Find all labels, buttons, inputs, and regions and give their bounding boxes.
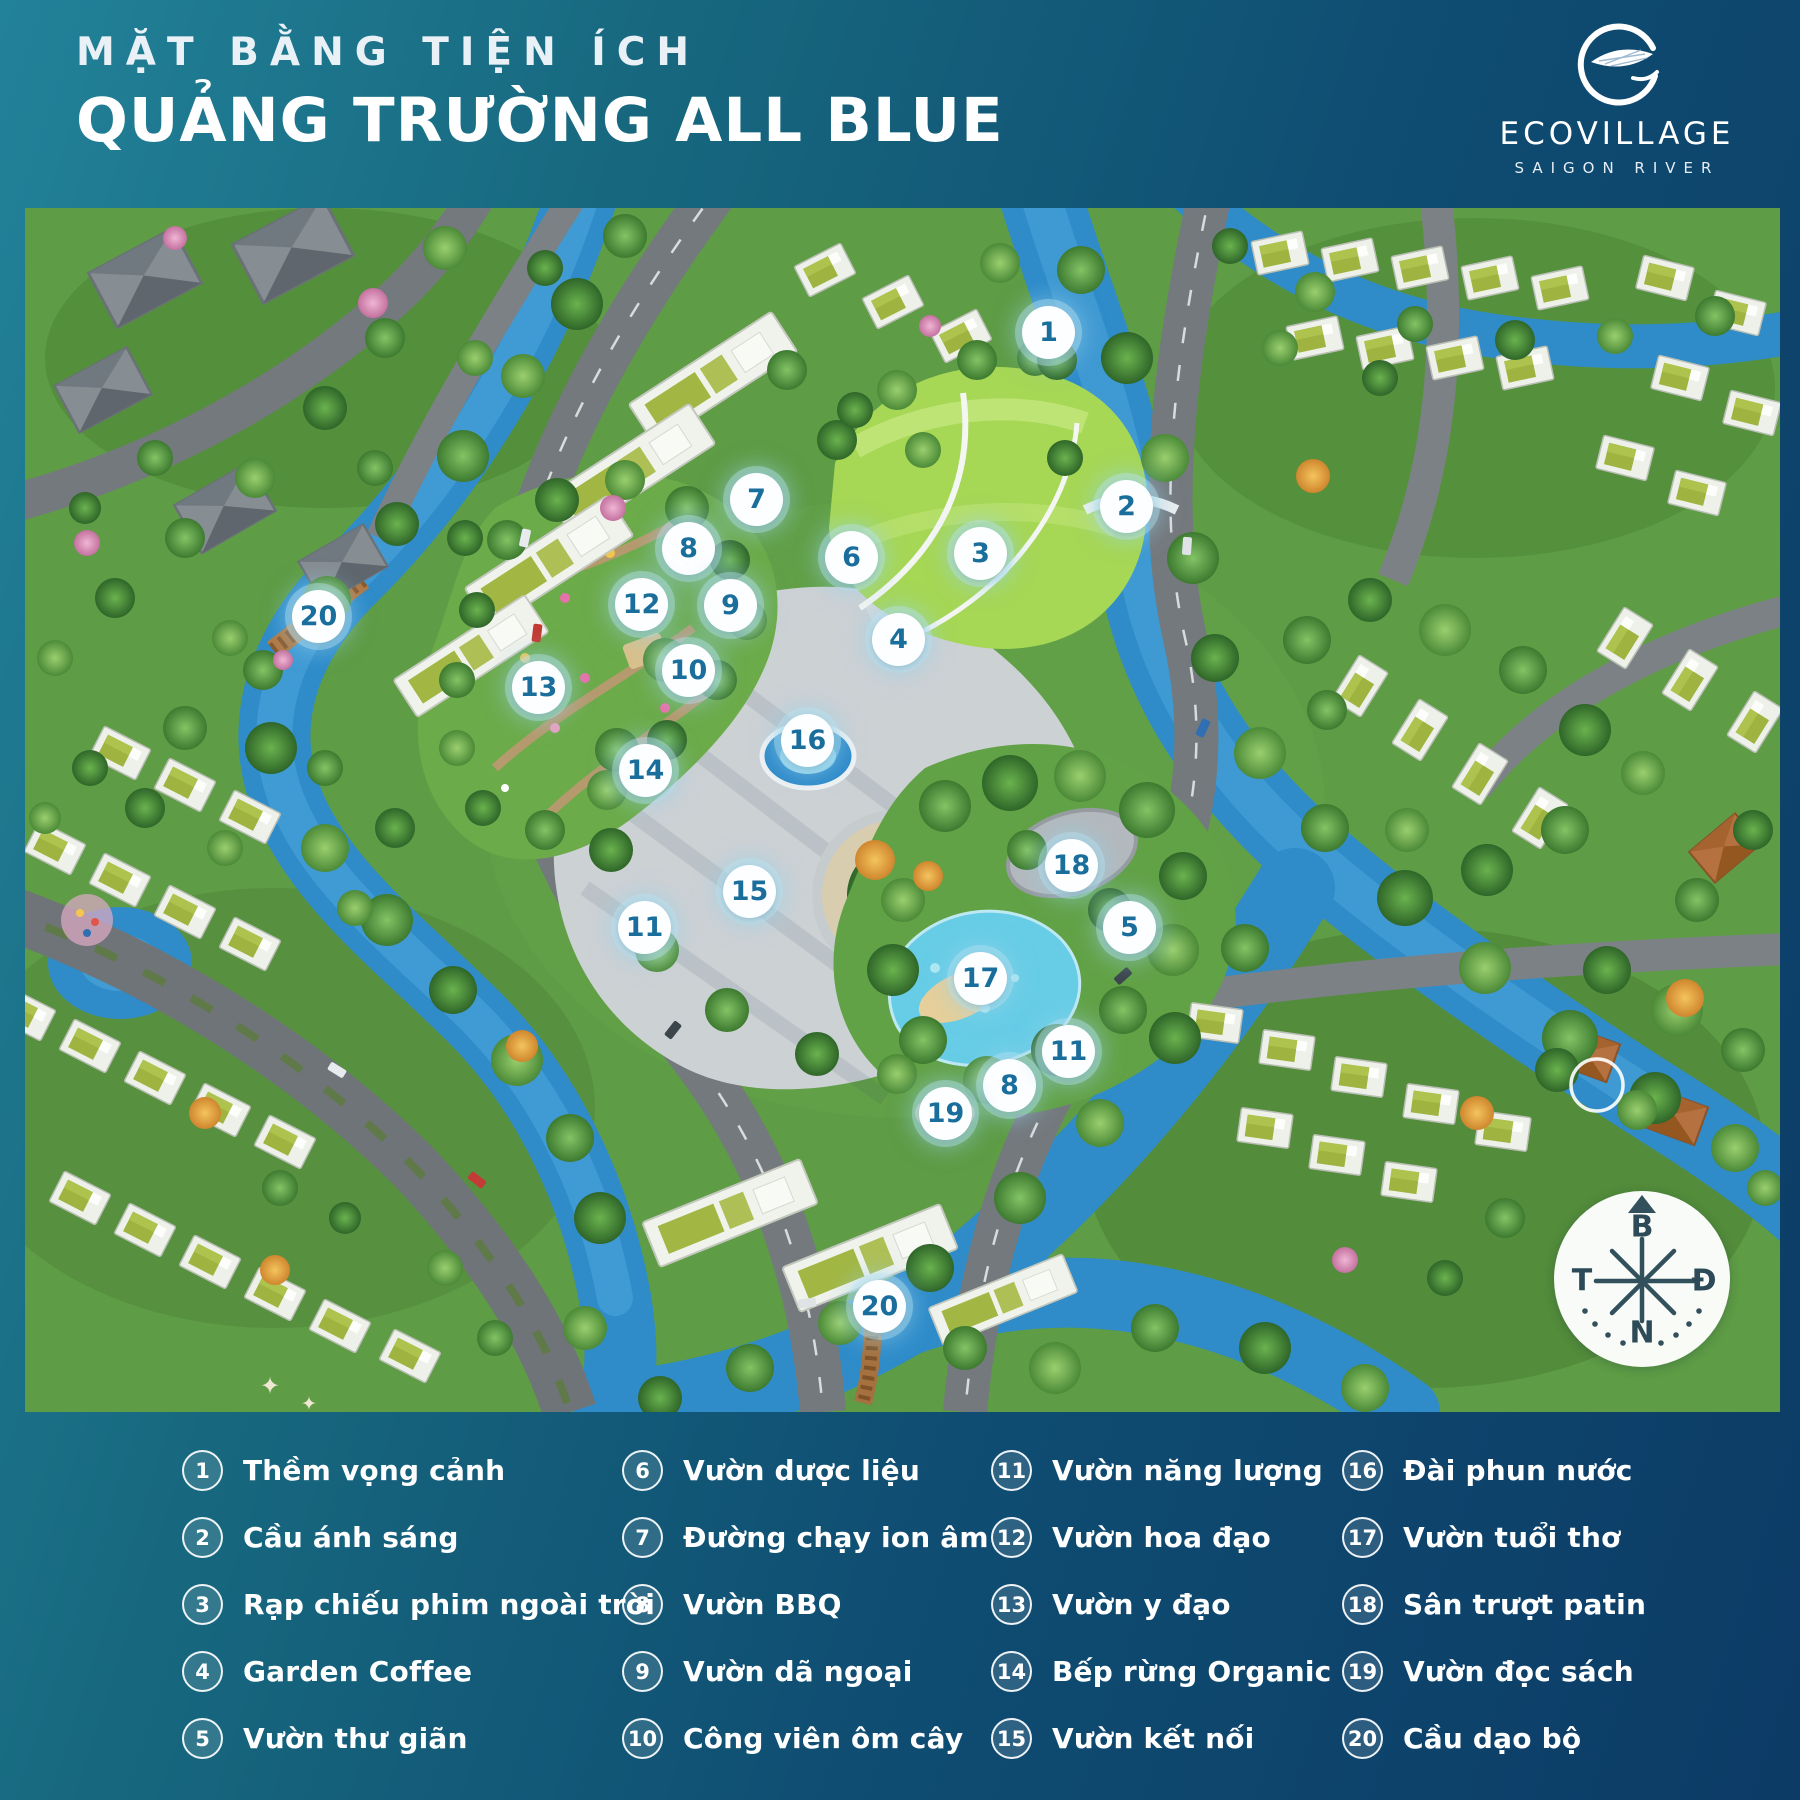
ecovillage-leaf-icon — [1567, 14, 1667, 110]
legend-item-6: 6Vườn dược liệu — [622, 1450, 989, 1491]
aerial-map: ✦ ✦ — [25, 208, 1780, 1412]
page-subtitle: MẶT BẰNG TIỆN ÍCH — [76, 30, 1004, 75]
map-marker-5: 5 — [1103, 901, 1156, 954]
legend-label: Cầu ánh sáng — [243, 1521, 459, 1554]
compass-west-label: T — [1572, 1264, 1592, 1299]
legend-label: Công viên ôm cây — [683, 1722, 963, 1755]
legend-column-3: 11Vườn năng lượng12Vườn hoa đạo13Vườn y … — [991, 1450, 1331, 1759]
legend-number-badge: 19 — [1342, 1651, 1383, 1692]
map-marker-19: 19 — [919, 1087, 972, 1140]
legend-number-badge: 8 — [622, 1584, 663, 1625]
svg-text:✦: ✦ — [260, 1372, 280, 1400]
map-marker-4: 4 — [872, 613, 925, 666]
legend-number-badge: 5 — [182, 1718, 223, 1759]
legend-item-12: 12Vườn hoa đạo — [991, 1517, 1331, 1558]
legend-label: Vườn y đạo — [1052, 1588, 1231, 1621]
legend-label: Đài phun nước — [1403, 1454, 1633, 1487]
map-marker-13: 13 — [512, 661, 565, 714]
legend-number-badge: 1 — [182, 1450, 223, 1491]
legend-number-badge: 18 — [1342, 1584, 1383, 1625]
site-plan-rendering: ✦ ✦ — [25, 208, 1780, 1412]
compass-east-label: Đ — [1691, 1264, 1716, 1299]
map-marker-17: 17 — [954, 952, 1007, 1005]
map-marker-11: 11 — [618, 901, 671, 954]
legend-item-15: 15Vườn kết nối — [991, 1718, 1331, 1759]
legend-label: Rạp chiếu phim ngoài trời — [243, 1588, 655, 1621]
map-marker-20: 20 — [853, 1280, 906, 1333]
brand-name: ECOVILLAGE — [1492, 116, 1742, 152]
legend-number-badge: 9 — [622, 1651, 663, 1692]
title-block: MẶT BẰNG TIỆN ÍCH QUẢNG TRƯỜNG ALL BLUE — [76, 30, 1004, 156]
map-marker-11: 11 — [1042, 1025, 1095, 1078]
legend-item-19: 19Vườn đọc sách — [1342, 1651, 1646, 1692]
map-marker-12: 12 — [615, 578, 668, 631]
map-marker-3: 3 — [954, 527, 1007, 580]
legend-item-4: 4Garden Coffee — [182, 1651, 655, 1692]
legend-number-badge: 14 — [991, 1651, 1032, 1692]
compass-rose: B N T Đ — [1554, 1191, 1730, 1367]
legend-item-3: 3Rạp chiếu phim ngoài trời — [182, 1584, 655, 1625]
map-marker-20: 20 — [292, 590, 345, 643]
compass-south-label: N — [1629, 1316, 1654, 1351]
legend-label: Vườn kết nối — [1052, 1722, 1254, 1755]
legend-label: Vườn đọc sách — [1403, 1655, 1634, 1688]
map-marker-6: 6 — [825, 531, 878, 584]
legend-item-10: 10Công viên ôm cây — [622, 1718, 989, 1759]
legend-label: Bếp rừng Organic — [1052, 1655, 1331, 1688]
map-marker-8: 8 — [983, 1059, 1036, 1112]
legend-item-8: 8Vườn BBQ — [622, 1584, 989, 1625]
legend-label: Vườn thư giãn — [243, 1722, 468, 1755]
page-title: QUẢNG TRƯỜNG ALL BLUE — [76, 85, 1004, 156]
map-marker-15: 15 — [723, 865, 776, 918]
legend-label: Sân trượt patin — [1403, 1588, 1646, 1621]
compass-north-label: B — [1631, 1210, 1654, 1245]
map-marker-18: 18 — [1045, 839, 1098, 892]
legend-column-4: 16Đài phun nước17Vườn tuổi thơ18Sân trượ… — [1342, 1450, 1646, 1759]
map-marker-10: 10 — [662, 644, 715, 697]
legend-number-badge: 6 — [622, 1450, 663, 1491]
legend-item-7: 7Đường chạy ion âm — [622, 1517, 989, 1558]
legend-item-11: 11Vườn năng lượng — [991, 1450, 1331, 1491]
legend-number-badge: 16 — [1342, 1450, 1383, 1491]
legend-number-badge: 2 — [182, 1517, 223, 1558]
legend-label: Garden Coffee — [243, 1655, 472, 1688]
legend-label: Vườn hoa đạo — [1052, 1521, 1271, 1554]
map-marker-1: 1 — [1022, 306, 1075, 359]
legend-item-2: 2Cầu ánh sáng — [182, 1517, 655, 1558]
map-marker-9: 9 — [704, 579, 757, 632]
legend-item-5: 5Vườn thư giãn — [182, 1718, 655, 1759]
legend-label: Vườn dã ngoại — [683, 1655, 913, 1688]
legend-number-badge: 20 — [1342, 1718, 1383, 1759]
legend-number-badge: 3 — [182, 1584, 223, 1625]
legend-column-1: 1Thềm vọng cảnh2Cầu ánh sáng3Rạp chiếu p… — [182, 1450, 655, 1759]
legend-item-16: 16Đài phun nước — [1342, 1450, 1646, 1491]
svg-text:✦: ✦ — [301, 1393, 317, 1412]
legend-number-badge: 17 — [1342, 1517, 1383, 1558]
map-marker-2: 2 — [1100, 480, 1153, 533]
map-marker-14: 14 — [619, 744, 672, 797]
legend-item-20: 20Cầu dạo bộ — [1342, 1718, 1646, 1759]
brand-tagline: SAIGON RIVER — [1492, 159, 1742, 177]
legend-label: Đường chạy ion âm — [683, 1521, 989, 1554]
legend-item-1: 1Thềm vọng cảnh — [182, 1450, 655, 1491]
map-marker-7: 7 — [730, 473, 783, 526]
legend-item-14: 14Bếp rừng Organic — [991, 1651, 1331, 1692]
legend-label: Vườn BBQ — [683, 1588, 842, 1621]
legend-item-18: 18Sân trượt patin — [1342, 1584, 1646, 1625]
legend-item-9: 9Vườn dã ngoại — [622, 1651, 989, 1692]
legend-number-badge: 12 — [991, 1517, 1032, 1558]
map-marker-8: 8 — [662, 522, 715, 575]
legend-label: Thềm vọng cảnh — [243, 1454, 505, 1487]
masterplan-poster: ✦ ✦ MẶT BẰNG TIỆN ÍCH QUẢNG TRƯỜNG ALL B… — [0, 0, 1800, 1800]
legend-label: Vườn dược liệu — [683, 1454, 920, 1487]
legend-number-badge: 15 — [991, 1718, 1032, 1759]
legend-item-17: 17Vườn tuổi thơ — [1342, 1517, 1646, 1558]
legend-number-badge: 4 — [182, 1651, 223, 1692]
brand-logo: ECOVILLAGE SAIGON RIVER — [1492, 14, 1742, 177]
legend-number-badge: 7 — [622, 1517, 663, 1558]
legend-label: Cầu dạo bộ — [1403, 1722, 1581, 1755]
legend-label: Vườn năng lượng — [1052, 1454, 1323, 1487]
legend-label: Vườn tuổi thơ — [1403, 1521, 1621, 1554]
map-marker-16: 16 — [781, 714, 834, 767]
legend-number-badge: 10 — [622, 1718, 663, 1759]
legend-number-badge: 11 — [991, 1450, 1032, 1491]
legend-column-2: 6Vườn dược liệu7Đường chạy ion âm8Vườn B… — [622, 1450, 989, 1759]
legend-number-badge: 13 — [991, 1584, 1032, 1625]
legend-item-13: 13Vườn y đạo — [991, 1584, 1331, 1625]
